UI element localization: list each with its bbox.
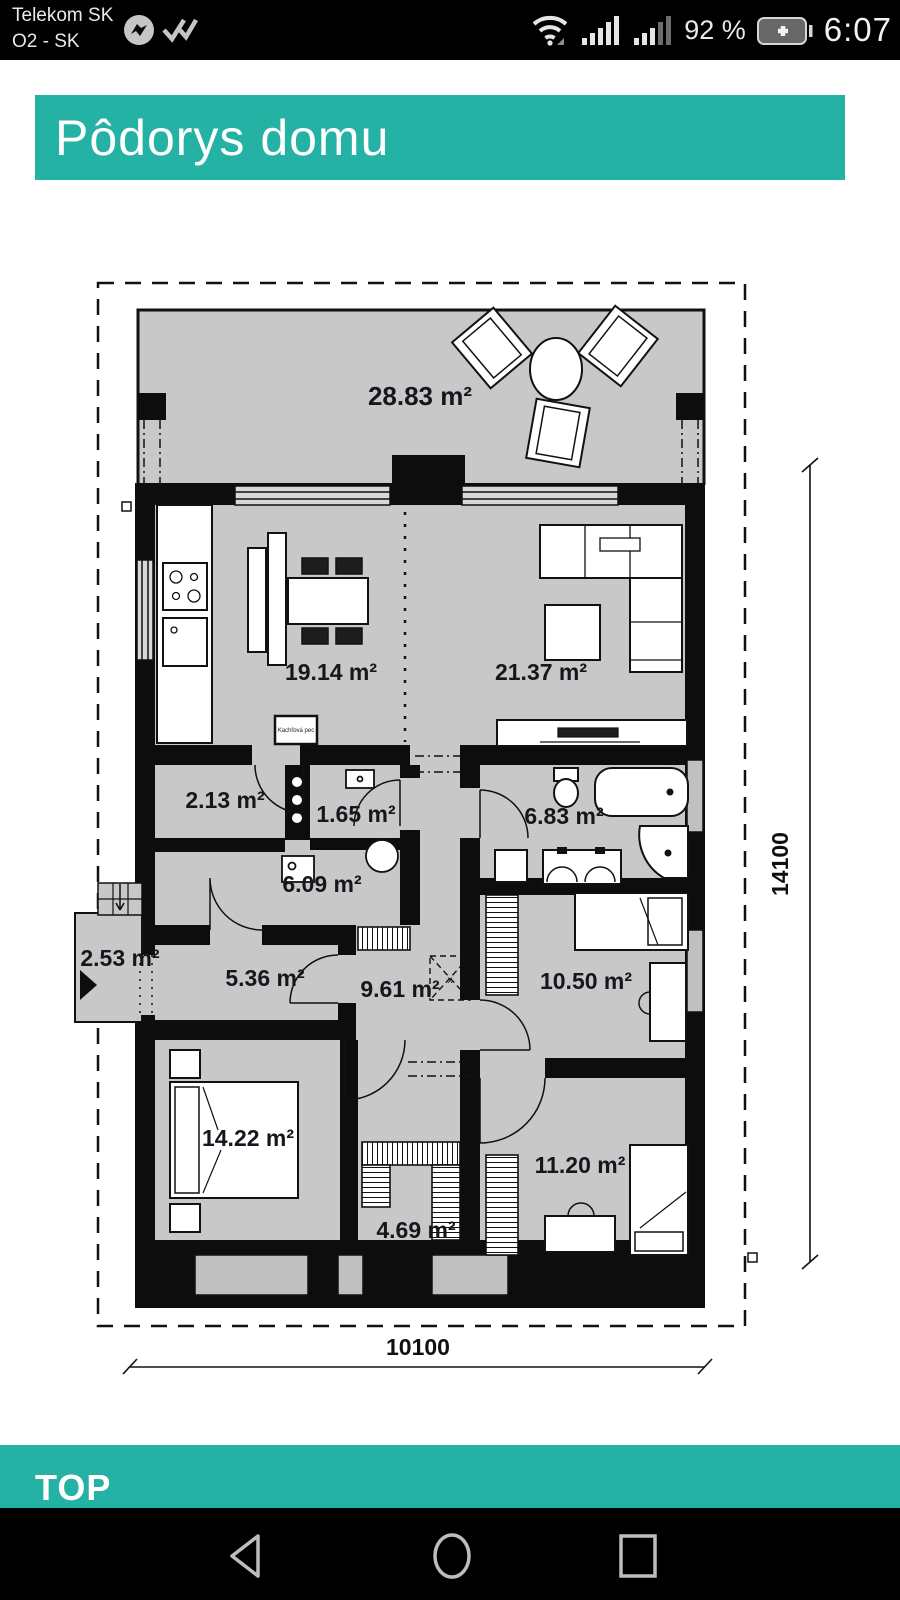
- recents-button[interactable]: [608, 1532, 668, 1580]
- room-label-closet: 4.69 m²: [376, 1217, 456, 1243]
- tile-stove: Kachľová pec: [275, 716, 317, 744]
- room-label-bedroom-right: 10.50 m²: [540, 968, 632, 994]
- room-label-porch: 2.53 m²: [80, 945, 160, 971]
- next-section-header[interactable]: TOP: [0, 1445, 900, 1508]
- room-label-bathroom: 6.83 m²: [524, 803, 604, 829]
- room-label-corridor: 9.61 m²: [360, 976, 440, 1002]
- chimney-flues: [292, 777, 302, 823]
- room-label-kitchen-dining: 19.14 m²: [285, 659, 377, 685]
- room-label-bedroom-bottom: 11.20 m²: [535, 1152, 626, 1178]
- back-button[interactable]: [218, 1532, 278, 1580]
- room-label-master: 14.22 m²: [202, 1125, 294, 1151]
- tile-stove-label: Kachľová pec: [278, 728, 314, 734]
- attic-label: x: [448, 975, 453, 986]
- room-label-hall: 5.36 m²: [225, 965, 305, 991]
- dimension-width-label: 10100: [386, 1334, 450, 1360]
- dimension-height-label: 14100: [767, 832, 793, 896]
- terrace-table: [530, 338, 582, 400]
- phone-screen: Telekom SK O2 - SK: [0, 0, 900, 1600]
- floor-plan-viewer[interactable]: Kachľová pec: [0, 0, 900, 1600]
- next-section-label: TOP: [35, 1467, 111, 1508]
- terrace-chair: [526, 399, 590, 467]
- android-nav-bar: [0, 1508, 900, 1600]
- room-label-living-room: 21.37 m²: [495, 659, 587, 685]
- dimension-bottom: 10100: [123, 1334, 712, 1374]
- room-label-wc: 1.65 m²: [316, 801, 396, 827]
- dimension-right: 14100: [767, 458, 818, 1269]
- room-label-utility: 6.09 m²: [282, 871, 362, 897]
- room-label-entry-closet: 2.13 m²: [185, 787, 265, 813]
- room-label-terrace: 28.83 m²: [368, 381, 472, 411]
- home-button[interactable]: [422, 1532, 482, 1580]
